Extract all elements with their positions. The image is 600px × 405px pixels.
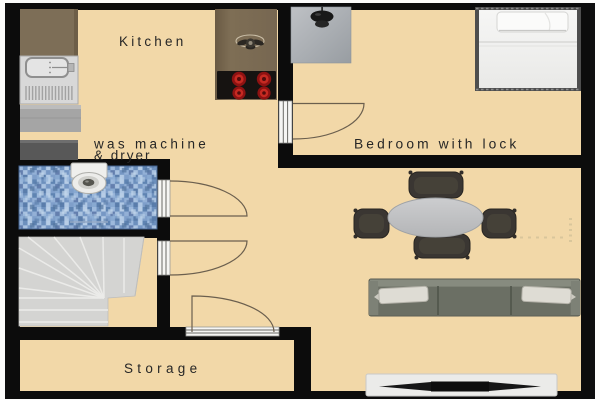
svg-text:Kitchen: Kitchen: [119, 34, 186, 49]
svg-text:& dryer: & dryer: [94, 148, 152, 163]
svg-text:Bedroom with lock: Bedroom with lock: [354, 137, 519, 152]
svg-text:Storage: Storage: [124, 361, 201, 376]
